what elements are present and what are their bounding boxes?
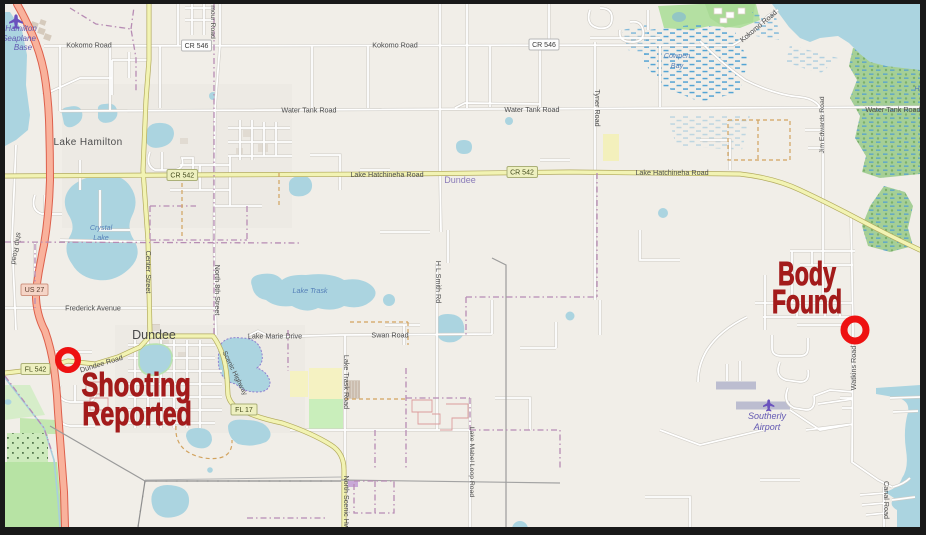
svg-text:Southerly: Southerly [748,411,787,421]
svg-text:Canal Road: Canal Road [882,481,891,519]
svg-text:Dundee: Dundee [132,328,176,342]
svg-text:Lake Trask: Lake Trask [292,286,327,295]
svg-text:Jim Edwards Road: Jim Edwards Road [819,96,826,153]
svg-text:Airport: Airport [753,422,781,432]
svg-text:Crystal: Crystal [90,223,113,232]
svg-text:Lake Hatchineha Road: Lake Hatchineha Road [350,170,423,179]
svg-text:Dundee: Dundee [444,175,476,185]
svg-text:Found: Found [772,284,842,321]
svg-text:Cowpen: Cowpen [664,51,690,60]
svg-text:mour Road: mour Road [209,5,216,39]
svg-text:Reported: Reported [82,396,191,433]
svg-text:Lake: Lake [93,233,109,242]
svg-text:FL 17: FL 17 [235,407,253,414]
svg-text:Water Tank Road: Water Tank Road [504,105,559,114]
svg-text:Lake Mabel Loop Road: Lake Mabel Loop Road [468,427,475,498]
svg-text:Lake Hatchineha Road: Lake Hatchineha Road [635,168,708,177]
svg-text:Bay: Bay [671,61,684,70]
svg-text:Tyner Road: Tyner Road [593,89,602,126]
svg-text:Water Tank Road: Water Tank Road [281,106,336,115]
svg-text:US 27: US 27 [25,287,45,294]
svg-text:Hamilton: Hamilton [5,24,37,33]
svg-text:Kokomo Road: Kokomo Road [66,41,112,50]
svg-text:FL 542: FL 542 [25,367,47,374]
svg-text:Seaplane: Seaplane [2,34,36,43]
svg-text:Frederick Avenue: Frederick Avenue [65,304,121,313]
svg-text:Kokomo Road: Kokomo Road [372,41,418,50]
svg-text:CR 542: CR 542 [170,173,194,180]
svg-text:North Scenic Hwy: North Scenic Hwy [342,475,351,533]
svg-text:CR 542: CR 542 [510,170,534,177]
svg-text:Center Street: Center Street [144,251,153,294]
svg-text:North 8th Street: North 8th Street [213,265,222,316]
svg-text:H L Smith Rd: H L Smith Rd [434,261,443,303]
svg-text:CR 546: CR 546 [532,42,556,49]
svg-text:Base: Base [14,43,33,52]
svg-text:Lake Hamilton: Lake Hamilton [53,137,122,148]
svg-text:Lake Marie Drive: Lake Marie Drive [248,332,302,341]
svg-text:Lake Trask Road: Lake Trask Road [342,355,351,409]
svg-text:Swan Road: Swan Road [371,331,408,340]
svg-text:Watkins Road: Watkins Road [849,346,858,390]
svg-text:CR 546: CR 546 [185,43,209,50]
svg-text:Water Tank Road: Water Tank Road [865,105,920,114]
